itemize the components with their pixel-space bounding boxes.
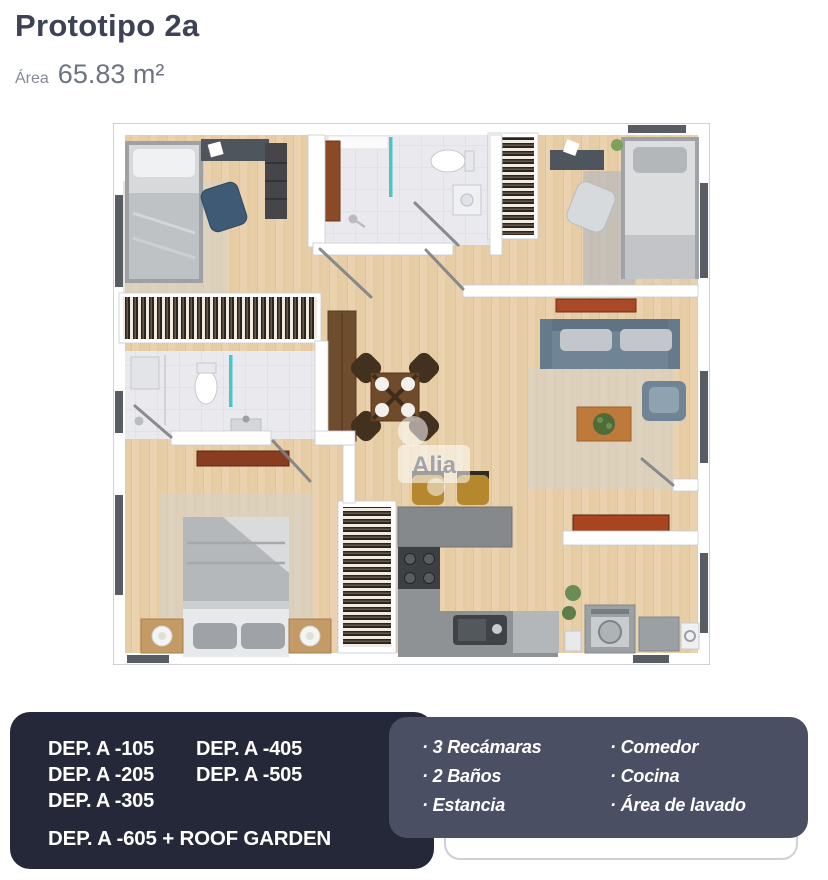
feature-item: · Estancia xyxy=(422,791,541,820)
unit-item: DEP. A -105 xyxy=(48,737,154,763)
feature-item: · 3 Recámaras xyxy=(422,733,541,762)
kitchen-cabinet xyxy=(513,611,559,653)
area-value: 65.83 m² xyxy=(58,59,165,90)
unit-item: DEP. A -205 xyxy=(48,763,154,789)
laundry-cabinet xyxy=(639,617,679,651)
unit-item: DEP. A -305 xyxy=(48,789,154,815)
feature-item: · Cocina xyxy=(610,762,746,791)
toilet-icon xyxy=(431,150,465,172)
feature-item: · Área de lavado xyxy=(610,791,746,820)
closet-bedroom-3 xyxy=(338,501,396,653)
page-title: Prototipo 2a xyxy=(15,8,199,44)
area-line: Área 65.83 m² xyxy=(15,59,199,90)
pillow-icon xyxy=(241,623,285,649)
plant-icon xyxy=(611,139,623,151)
features-column-2: · Comedor · Cocina · Área de lavado xyxy=(610,733,746,820)
plant-icon xyxy=(593,413,615,435)
bathroom-2 xyxy=(125,351,315,439)
units-footnote: DEP. A -605 + ROOF GARDEN xyxy=(48,827,331,851)
hall-cabinet xyxy=(324,141,340,221)
pillow-icon xyxy=(193,623,237,649)
sideboard-icon xyxy=(573,515,669,531)
floorplan-render: Alia xyxy=(113,123,710,665)
closet-bedroom-1 xyxy=(119,293,321,343)
floorplan-svg: Alia xyxy=(113,123,710,665)
stove-icon xyxy=(398,547,440,589)
area-label: Área xyxy=(15,70,49,88)
console-icon xyxy=(556,299,636,312)
shower-glass-teal xyxy=(229,355,233,407)
living-room xyxy=(528,319,686,489)
watermark-text: Alia xyxy=(412,452,457,479)
shower-glass-teal xyxy=(389,137,393,197)
bathroom-1 xyxy=(325,135,490,245)
units-column-b: DEP. A -405 DEP. A -505 xyxy=(196,737,302,789)
units-column-a: DEP. A -105 DEP. A -205 DEP. A -305 xyxy=(48,737,154,814)
kitchen-island xyxy=(398,507,512,547)
unit-item: DEP. A -405 xyxy=(196,737,302,763)
feature-item: · 2 Baños xyxy=(422,762,541,791)
shower-head-icon xyxy=(135,417,144,426)
features-column-1: · 3 Recámaras · 2 Baños · Estancia xyxy=(422,733,541,820)
unit-item: DEP. A -505 xyxy=(196,763,302,789)
desk-icon xyxy=(550,150,604,170)
plant-icon xyxy=(565,585,581,601)
feature-item: · Comedor xyxy=(610,733,746,762)
dresser-icon xyxy=(197,451,289,466)
header: Prototipo 2a Área 65.83 m² xyxy=(15,8,199,90)
toilet-icon xyxy=(195,370,217,404)
